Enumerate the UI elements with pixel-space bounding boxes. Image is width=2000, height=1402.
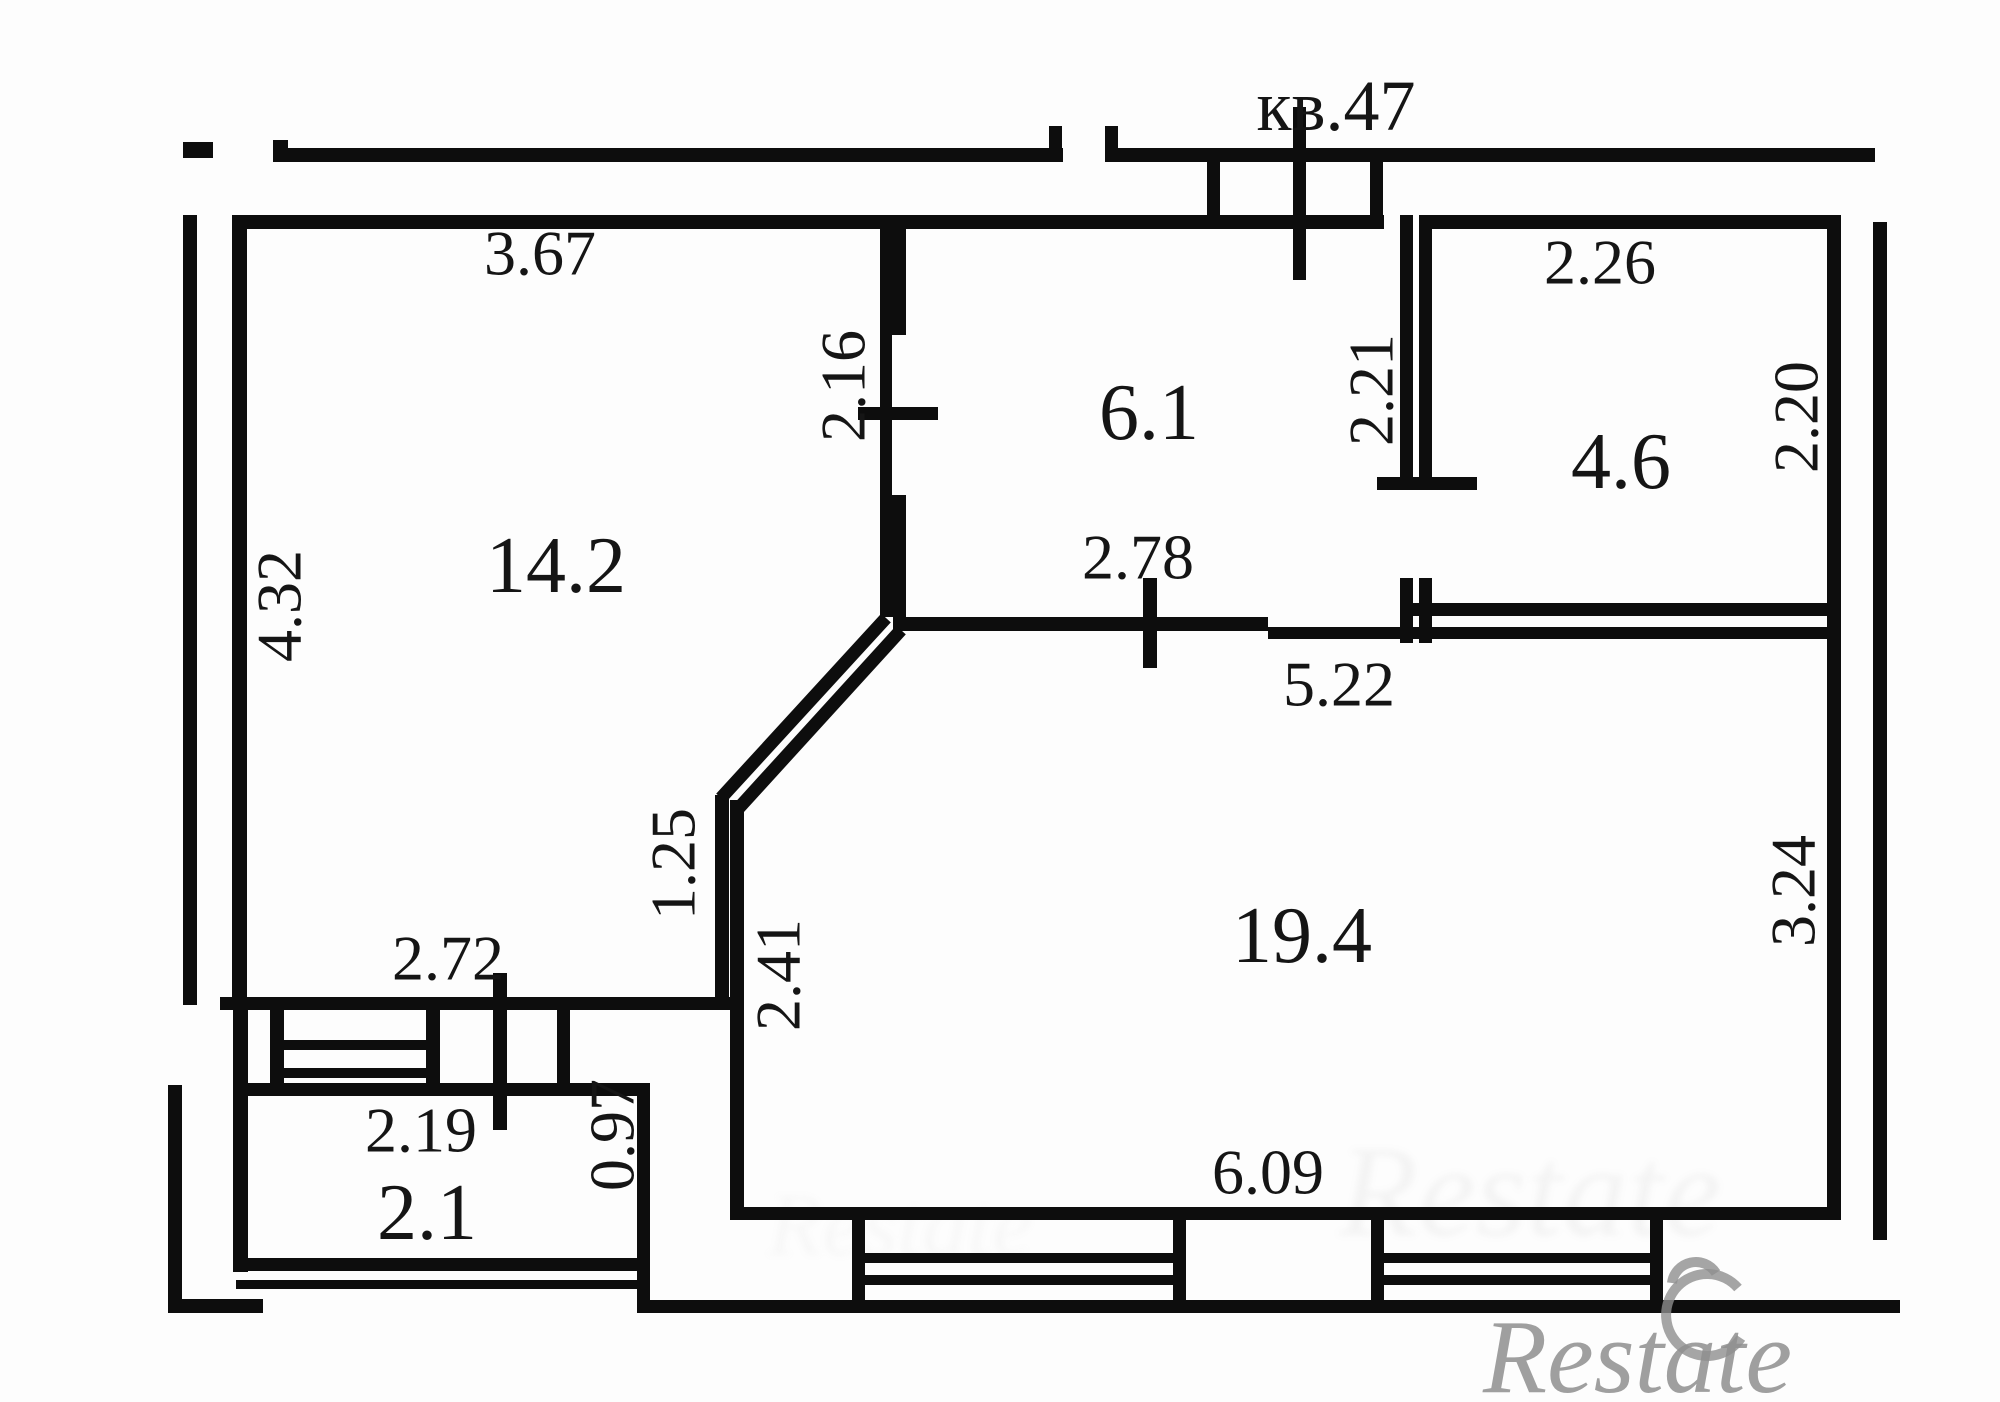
dim-label-room4-top: 2.26 bbox=[1544, 227, 1656, 298]
dim-label-room19-bottom: 6.09 bbox=[1212, 1137, 1324, 1208]
wall-balcony-bottom bbox=[236, 1258, 650, 1271]
room-14-2-walls bbox=[220, 215, 892, 1010]
dim-label-room19-top: 5.22 bbox=[1283, 649, 1395, 720]
wall-room14-bottom bbox=[220, 997, 743, 1010]
dim-label-room6-door-bottom: 2.78 bbox=[1082, 522, 1194, 593]
wall-room4-bottom bbox=[1400, 603, 1841, 616]
wall-room6-top bbox=[894, 215, 1384, 229]
apartment-number-label: кв.47 bbox=[1257, 66, 1416, 146]
dim-label-room19-right: 3.24 bbox=[1758, 835, 1829, 947]
wall-room19-bottom-window1-top bbox=[852, 1207, 1186, 1220]
dim-label-room4-right: 2.20 bbox=[1761, 361, 1832, 473]
window1-sill-lower bbox=[865, 1275, 1173, 1285]
window1-jamb-left bbox=[852, 1207, 865, 1313]
outer-wall-top-left-dash bbox=[183, 142, 213, 158]
floorplan-svg: Restate Restate bbox=[0, 0, 2000, 1402]
dim-label-door-room14-room6: 2.16 bbox=[808, 330, 879, 442]
watermark-ghost-text: Restate bbox=[1338, 1120, 1722, 1264]
wall-room19-top bbox=[1268, 627, 1841, 639]
wall-balcony-left bbox=[233, 1010, 248, 1272]
window1-jamb-right bbox=[1173, 1207, 1186, 1313]
window2-jamb-left bbox=[1371, 1207, 1384, 1313]
room-area-label-6-1: 6.1 bbox=[1099, 369, 1199, 457]
wall-room19-bottom-mid bbox=[1186, 1207, 1371, 1220]
window2-sill-upper bbox=[1384, 1253, 1650, 1263]
dim-label-door-room6-room4: 2.21 bbox=[1336, 334, 1407, 446]
balcony-window-sill-lower bbox=[270, 1068, 440, 1078]
dim-label-diag-upper: 1.25 bbox=[638, 808, 709, 920]
outer-wall-top-nub-mid-left bbox=[1049, 126, 1062, 148]
floorplan-canvas: Restate Restate bbox=[0, 0, 2000, 1402]
outer-wall-top-right-segment bbox=[1105, 148, 1875, 162]
outer-wall-top-nub-mid-right bbox=[1105, 126, 1118, 148]
wall-room19-bottom-right bbox=[1663, 1207, 1841, 1220]
room-area-label-balcony: 2.1 bbox=[377, 1169, 477, 1257]
window-top-connector-left bbox=[1207, 156, 1220, 222]
dim-label-room14-top: 3.67 bbox=[484, 218, 596, 289]
wall-diagonal-outer bbox=[721, 618, 886, 798]
room-area-label-19-4: 19.4 bbox=[1232, 892, 1372, 980]
dim-label-room14-left: 4.32 bbox=[244, 550, 315, 662]
dim-label-balcony-door: 2.19 bbox=[365, 1095, 477, 1166]
wall-room19-bottom-left bbox=[730, 1207, 852, 1220]
outer-wall-bottom-left-stub bbox=[168, 1299, 263, 1313]
window-top-connector-right bbox=[1370, 156, 1383, 222]
balcony-window-sill-upper bbox=[270, 1040, 440, 1050]
room-area-label-4-6: 4.6 bbox=[1571, 418, 1671, 506]
door-tick-room6-room4 bbox=[1377, 477, 1477, 490]
wall-divider14-6-upper bbox=[880, 215, 906, 335]
balcony-sill bbox=[236, 1280, 650, 1289]
wall-divider6-4-right-upper bbox=[1419, 215, 1432, 477]
diagonal-wall bbox=[721, 618, 901, 810]
outer-wall-left-lower bbox=[168, 1085, 182, 1313]
wall-room14-right-lower bbox=[715, 795, 729, 1010]
outer-wall-top-left-segment bbox=[273, 148, 1063, 162]
dim-label-room14-bottom: 2.72 bbox=[392, 923, 504, 994]
dim-label-balcony-right: 0.97 bbox=[577, 1079, 648, 1191]
wall-room6-bottom bbox=[893, 617, 1268, 631]
dim-label-diag-lower: 2.41 bbox=[743, 919, 814, 1031]
watermark-brand-text: Restate bbox=[1482, 1298, 1792, 1402]
balcony-door-connector bbox=[557, 1010, 570, 1083]
room-area-label-14-2: 14.2 bbox=[486, 522, 626, 610]
wall-room19-bottom-window2-top bbox=[1371, 1207, 1663, 1220]
outer-wall-right bbox=[1873, 222, 1887, 1240]
wall-divider14-6-lower bbox=[880, 495, 906, 617]
wall-diagonal-inner bbox=[737, 630, 901, 810]
window2-sill-lower bbox=[1384, 1275, 1650, 1285]
window1-sill-upper bbox=[865, 1253, 1173, 1263]
door-tick-balcony bbox=[493, 973, 507, 1130]
outer-wall-left-upper bbox=[183, 215, 197, 1005]
